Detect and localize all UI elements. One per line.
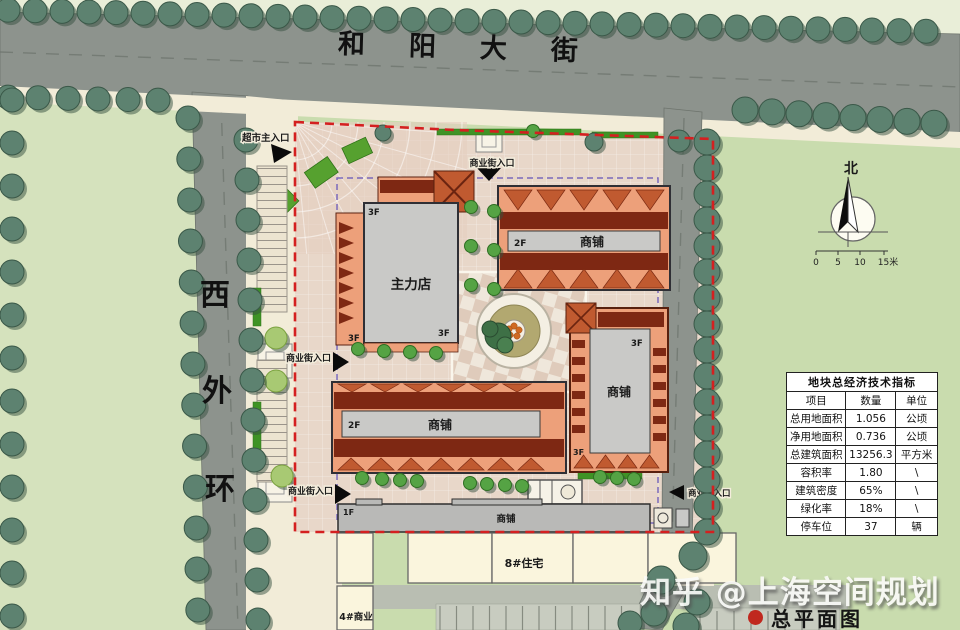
tree-icon [806, 17, 830, 41]
tree-icon [56, 86, 80, 110]
left-street-name: 外 [202, 366, 232, 410]
table-cell: 平方米 [896, 446, 938, 464]
tree-icon [488, 283, 501, 296]
tree-icon [516, 480, 529, 493]
tree-icon [394, 474, 407, 487]
tree-icon [694, 207, 720, 233]
tree-icon [732, 97, 758, 123]
tree-icon [465, 279, 478, 292]
tree-icon [104, 1, 128, 25]
tree-icon [698, 14, 722, 38]
table-cell: 建筑密度 [787, 482, 846, 500]
floor-label: 2F [348, 421, 360, 431]
tree-icon [183, 475, 207, 499]
tree-icon [679, 542, 707, 570]
tree-icon [0, 561, 24, 585]
tree-icon [628, 473, 641, 486]
tree-icon [26, 86, 50, 110]
tree-icon [465, 201, 478, 214]
table-cell: 18% [846, 500, 896, 518]
tree-icon [694, 337, 720, 363]
tree-icon [50, 0, 74, 23]
roof-dormer [653, 399, 666, 407]
tree-icon [265, 370, 287, 392]
tree-icon [356, 472, 369, 485]
table-cell: 停车位 [787, 518, 846, 536]
tree-icon [184, 516, 208, 540]
tree-icon [176, 106, 200, 130]
tree-icon [244, 528, 268, 552]
residential-label: 8#住宅 [505, 556, 544, 570]
tree-icon [725, 15, 749, 39]
table-cell: 总用地面积 [787, 410, 846, 428]
tree-icon [0, 389, 24, 413]
tree-icon [465, 240, 478, 253]
tree-icon [242, 448, 266, 472]
tree-icon [833, 17, 857, 41]
table-title: 地块总经济技术指标 [787, 373, 938, 392]
table-header: 单位 [896, 392, 938, 410]
shrub-icon [482, 321, 498, 337]
entrance-label: 超市主入口 [241, 132, 290, 144]
tree-icon [243, 488, 267, 512]
floor-label: 1F [343, 508, 354, 517]
commercial4-label: 4#商业 [339, 611, 373, 623]
table-header: 数量 [846, 392, 896, 410]
left-street-name: 西 [200, 270, 230, 314]
entrance-label: 商业街入口 [469, 157, 514, 169]
tree-icon [887, 19, 911, 43]
tree-icon [779, 16, 803, 40]
tree-icon [668, 130, 690, 152]
tree-icon [488, 205, 501, 218]
tree-icon [694, 129, 720, 155]
tree-icon [271, 465, 293, 487]
tree-icon [0, 88, 24, 112]
tree-icon [694, 155, 720, 181]
tree-icon [786, 101, 812, 127]
floor-label: 3F [438, 329, 450, 339]
tree-icon [694, 493, 720, 519]
tree-icon [694, 441, 720, 467]
commercial4-block [337, 586, 373, 630]
table-cell: 公顷 [896, 428, 938, 446]
table-header: 项目 [787, 392, 846, 410]
tree-icon [914, 19, 938, 43]
tree-icon [239, 4, 263, 28]
grass-left [0, 92, 206, 630]
site-plan: 主力店 3F 3F 3F 2F 商铺 3F 商铺 3F [0, 0, 960, 630]
tree-icon [131, 1, 155, 25]
table-cell: 37 [846, 518, 896, 536]
caption-label: 总平面图 [771, 603, 863, 630]
tree-icon [860, 18, 884, 42]
shop-label: 商铺 [580, 234, 604, 249]
shop-label: 商铺 [428, 417, 452, 432]
tree-icon [0, 131, 24, 155]
shop-top-building: 2F 商铺 [498, 186, 670, 290]
entrance-label: 商业街入口 [286, 352, 331, 364]
floor-label: 3F [368, 208, 380, 218]
scale-tick-label: 10 [854, 258, 866, 268]
tree-icon [694, 363, 720, 389]
tree-icon [246, 608, 270, 630]
tree-icon [694, 311, 720, 337]
tree-icon [0, 217, 24, 241]
tree-icon [694, 467, 720, 493]
roof-dormer [653, 416, 666, 424]
table-cell: 容积率 [787, 464, 846, 482]
sidewalk-bottom [266, 532, 342, 630]
tree-icon [185, 557, 209, 581]
tree-icon [376, 473, 389, 486]
tree-icon [464, 477, 477, 490]
tree-icon [177, 147, 201, 171]
tree-icon [694, 389, 720, 415]
indicators-table: 地块总经济技术指标 项目 数量 单位 总用地面积 1.056 公顷 净用地面积 … [786, 372, 938, 536]
tree-icon [0, 518, 24, 542]
table-cell: 0.736 [846, 428, 896, 446]
roof-dormer [572, 391, 585, 399]
tree-icon [116, 88, 140, 112]
table-cell: 公顷 [896, 410, 938, 428]
tree-icon [178, 188, 202, 212]
tree-icon [0, 260, 24, 284]
shop-label: 商铺 [496, 513, 516, 525]
table-cell: 辆 [896, 518, 938, 536]
street-shop-building: 商铺 1F [338, 499, 689, 532]
tree-icon [23, 0, 47, 23]
roof-dormer [653, 365, 666, 373]
tree-icon [239, 328, 263, 352]
tree-icon [180, 311, 204, 335]
left-street-name: 环 [205, 464, 235, 508]
tree-icon [238, 288, 262, 312]
tree-icon [481, 478, 494, 491]
floor-label: 3F [573, 448, 584, 457]
plan-caption: 总平面图 [748, 603, 863, 630]
red-dot-icon [748, 610, 763, 625]
tree-icon [0, 174, 24, 198]
table-cell: 绿化率 [787, 500, 846, 518]
tree-icon [186, 598, 210, 622]
tree-icon [0, 0, 20, 22]
floor-label: 3F [631, 339, 643, 349]
tree-icon [146, 88, 170, 112]
tree-icon [499, 479, 512, 492]
tree-icon [240, 368, 264, 392]
tree-icon [265, 327, 287, 349]
fountain [477, 294, 551, 368]
tree-icon [352, 343, 365, 356]
roof-dormer [572, 340, 585, 348]
tree-icon [694, 285, 720, 311]
tree-icon [813, 103, 839, 129]
table-cell: 净用地面积 [787, 428, 846, 446]
scale-tick-label: 5 [835, 258, 841, 268]
scale-tick-label: 0 [813, 258, 819, 268]
tree-icon [86, 87, 110, 111]
tree-icon [611, 472, 624, 485]
tree-icon [404, 346, 417, 359]
tree-icon [430, 347, 443, 360]
parking-lot [436, 604, 640, 630]
floor-label: 2F [514, 239, 526, 249]
terrace-steps [257, 166, 287, 312]
table-cell: 1.80 [846, 464, 896, 482]
tree-icon [185, 3, 209, 27]
tree-icon [921, 110, 947, 136]
roof-dormer [653, 382, 666, 390]
tree-icon [235, 168, 259, 192]
roof-dormer [572, 408, 585, 416]
utility-structure [676, 509, 689, 527]
scale-tick-label: 15米 [878, 256, 898, 268]
tree-icon [694, 233, 720, 259]
tree-icon [77, 0, 101, 24]
tree-icon [158, 2, 182, 26]
tree-icon [241, 408, 265, 432]
table-cell: \ [896, 500, 938, 518]
entrance-label: 商业街入口 [288, 485, 333, 497]
tree-icon [752, 16, 776, 40]
tree-icon [237, 248, 261, 272]
tree-icon [236, 208, 260, 232]
table-cell: \ [896, 482, 938, 500]
tree-icon [694, 181, 720, 207]
north-label: 北 [844, 161, 858, 177]
tree-icon [0, 604, 24, 628]
tree-icon [378, 345, 391, 358]
tree-icon [245, 568, 269, 592]
roof-dormer [572, 357, 585, 365]
tree-icon [618, 611, 642, 630]
roof-dormer [572, 425, 585, 433]
tree-icon [411, 475, 424, 488]
table-cell: 65% [846, 482, 896, 500]
tree-icon [0, 346, 24, 370]
table-cell: \ [896, 464, 938, 482]
tree-icon [694, 259, 720, 285]
tree-icon [644, 13, 668, 37]
tree-icon [0, 303, 24, 327]
shop-right-building: 3F 商铺 3F [566, 303, 668, 472]
tree-icon [266, 4, 290, 28]
tree-icon [594, 471, 607, 484]
tree-icon [0, 475, 24, 499]
tree-icon [759, 99, 785, 125]
table-cell: 1.056 [846, 410, 896, 428]
tree-icon [0, 432, 24, 456]
table-cell: 总建筑面积 [787, 446, 846, 464]
table-cell: 13256.3 [846, 446, 896, 464]
tree-icon [894, 108, 920, 134]
tree-icon [527, 125, 540, 138]
shrub-icon [497, 337, 513, 353]
tree-icon [293, 5, 317, 29]
roof-dormer [653, 348, 666, 356]
tree-icon [212, 3, 236, 27]
roof-dormer [653, 433, 666, 441]
main-store-label: 主力店 [391, 276, 432, 293]
utility-structure [654, 508, 672, 528]
roof-dormer [572, 374, 585, 382]
tree-icon [671, 14, 695, 38]
tree-icon [183, 434, 207, 458]
tree-icon [840, 105, 866, 131]
shop-bottom-building: 2F 商铺 [332, 382, 566, 473]
tree-icon [178, 229, 202, 253]
tree-icon [488, 244, 501, 257]
shop-label: 商铺 [607, 384, 631, 399]
tree-icon [867, 106, 893, 132]
tree-icon [694, 415, 720, 441]
